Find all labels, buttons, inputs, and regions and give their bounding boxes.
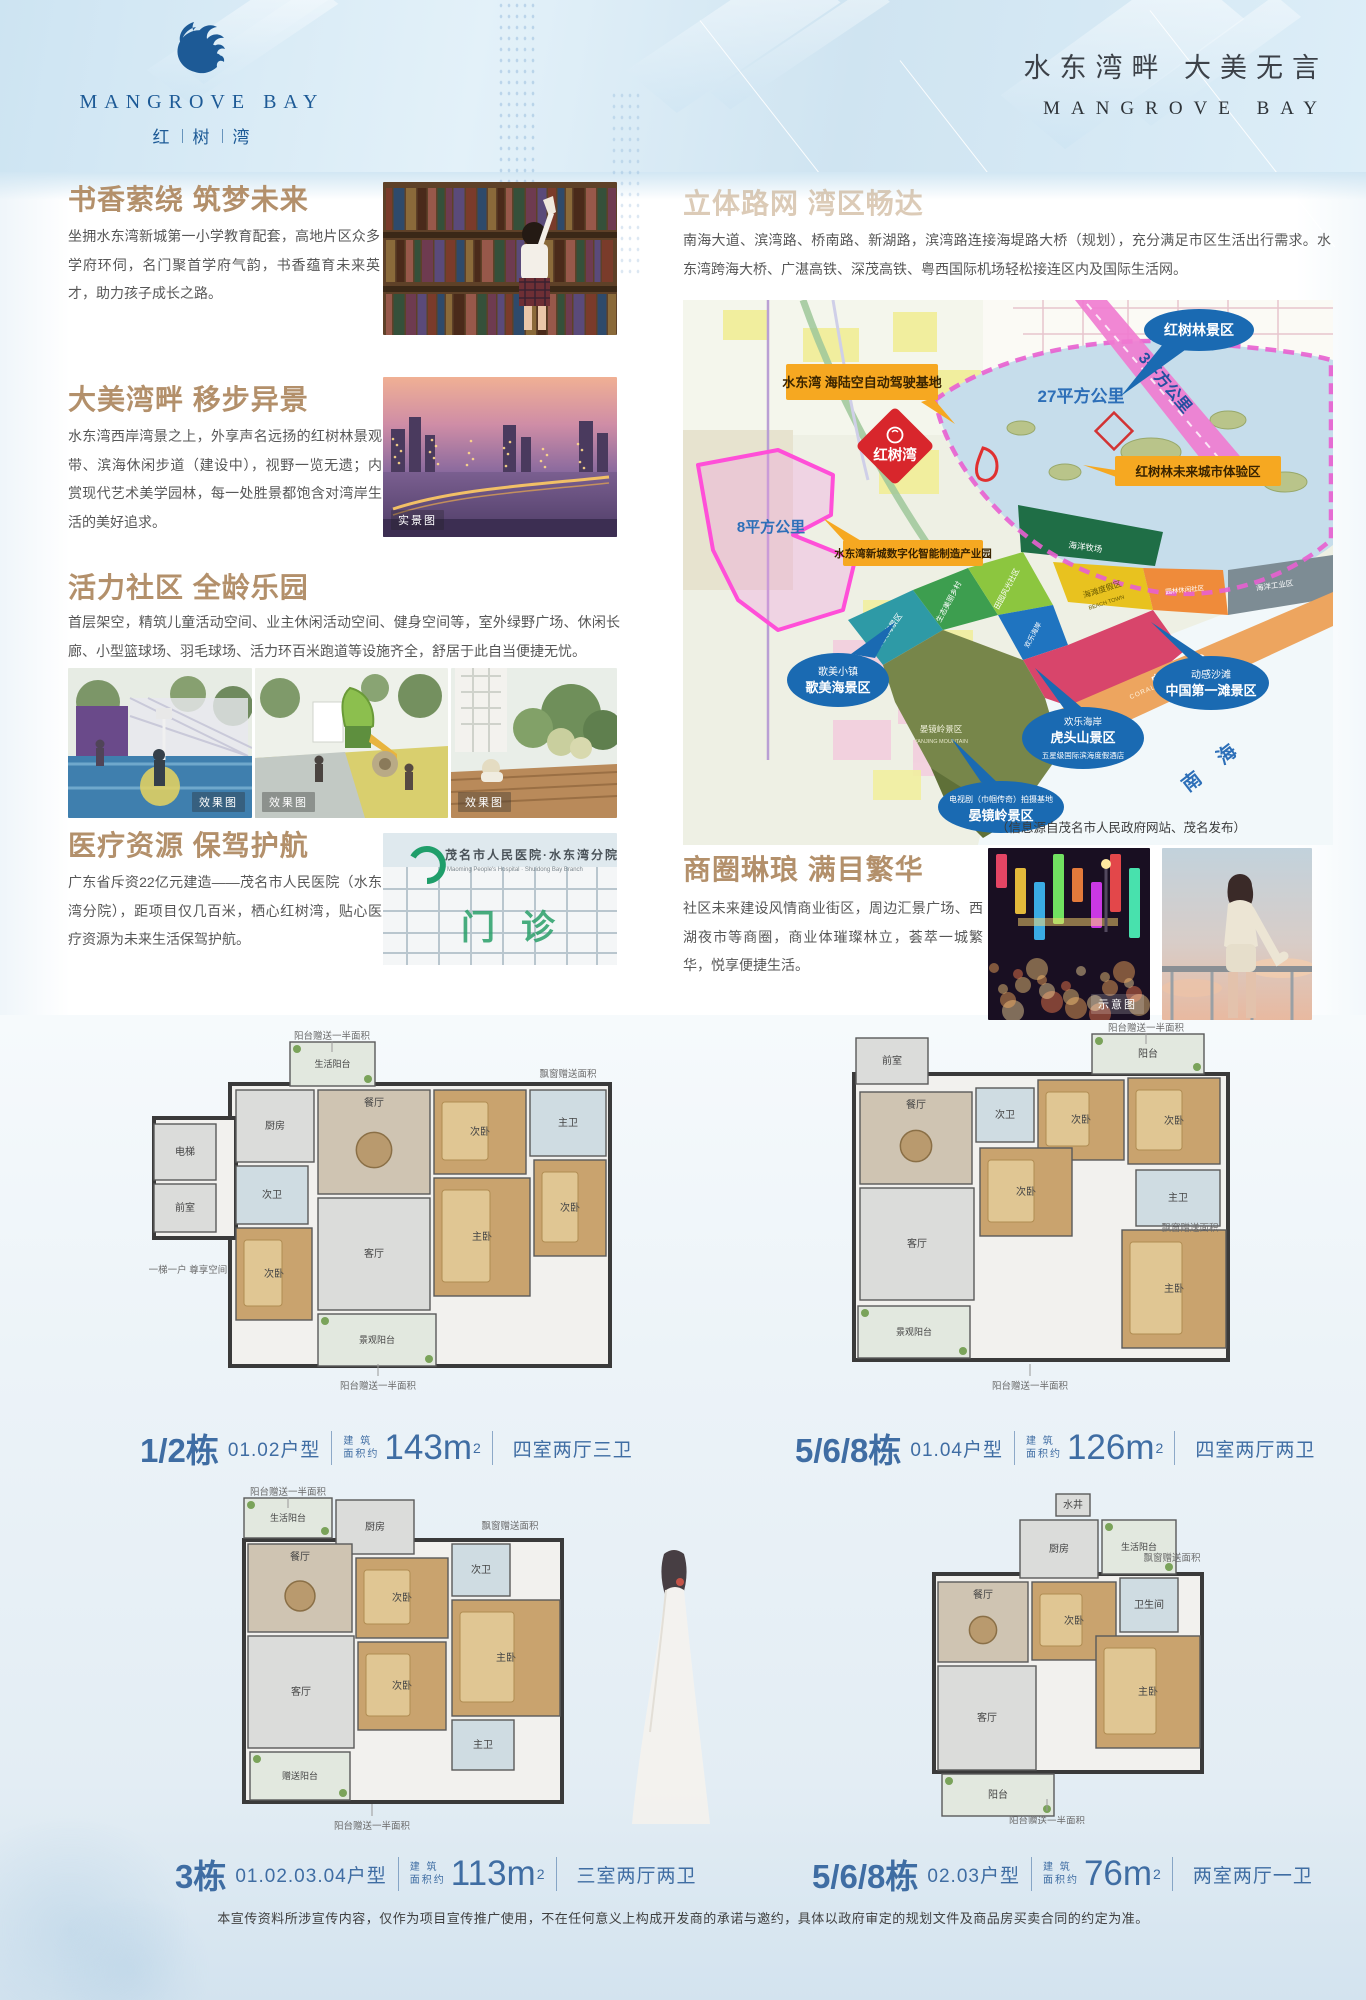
photo-balcony-lady [1162, 848, 1312, 1020]
area-sup: 2 [537, 1866, 545, 1882]
book-spine [428, 188, 436, 230]
book-spine [394, 294, 405, 335]
room-label: 客厅 [291, 1685, 311, 1698]
brand-char: 红 [153, 123, 172, 148]
photo-bay-sunset: 实景图 [383, 377, 617, 537]
floorplan-1: 生活阳台厨房餐厅次卧主卫次卫客厅主卧次卧次卧景观阳台电梯前室阳台赠送一半面积飘窗… [140, 1028, 620, 1399]
ellipse-yanjing-line1: 电视剧（巾帼传奇）拍摄基地 [949, 794, 1053, 804]
book-spine [466, 294, 476, 335]
crowd-light [1015, 977, 1031, 993]
left-edge-wash [0, 172, 70, 1015]
book-spine [457, 240, 465, 282]
book-spine [418, 294, 427, 335]
book-spine [438, 188, 445, 230]
window-light [581, 449, 584, 452]
room-label: 主卧 [472, 1230, 492, 1243]
book-spine [415, 240, 421, 282]
crowd-light [1061, 981, 1071, 991]
book-spine [566, 188, 572, 230]
neon-sign [1053, 854, 1064, 924]
balcony-lady-illustration [1162, 848, 1312, 1020]
window-light [398, 462, 401, 465]
area-caption-line: 建 筑 [343, 1435, 379, 1448]
crowd-light [1100, 972, 1110, 982]
floorplan-4: 水井厨房生活阳台餐厅次卧卫生间主卧客厅阳台飘窗赠送面积阳台赠送一半面积 [842, 1488, 1242, 1829]
book-spine [608, 188, 616, 230]
room-label: 景观阳台 [896, 1326, 932, 1337]
floorplan-label-3: 3栋 01.02.03.04户型 建 筑面积约 113m2 三室两厅两卫 [175, 1850, 697, 1898]
book-spine [558, 294, 565, 335]
book-spine [466, 240, 473, 282]
neon-sign [1129, 868, 1140, 938]
floorplan-2: 前室阳台餐厅次卫次卧次卧次卧客厅主卫主卧景观阳台阳台赠送一半面积飘窗赠送面积阳台… [792, 1022, 1237, 1399]
ellipse-gemei-line2: 歌美海景区 [805, 680, 870, 695]
header-band: MANGROVE BAY 红树湾 水东湾畔 大美无言 MANGROVE BAY [0, 0, 1366, 172]
area-caption-line: 面积约 [410, 1874, 446, 1887]
photo-night-market: 示意图 [988, 848, 1150, 1020]
room-label: 餐厅 [290, 1550, 310, 1563]
room-label: 主卧 [496, 1651, 516, 1664]
book-spine [482, 240, 493, 282]
book-spine [566, 240, 575, 282]
callout-label: 阳台赠送一半面积 [250, 1486, 327, 1498]
section-body-medical: 广东省斥资22亿元建造——茂名市人民医院（水东湾分院），距项目仅几百米，栖心红树… [68, 868, 382, 954]
room-layout: 四室两厅两卫 [1195, 1435, 1315, 1462]
building-number: 1/2栋 [140, 1424, 219, 1472]
room-layout: 三室两厅两卫 [577, 1861, 697, 1888]
divider [492, 1431, 493, 1465]
book-spine [506, 294, 512, 335]
building-number: 5/6/8栋 [812, 1850, 918, 1898]
bride-decoration [628, 1532, 716, 1832]
book-spine [488, 188, 496, 230]
book-spine [478, 294, 487, 335]
plant [1095, 1037, 1103, 1045]
room-label: 客厅 [977, 1711, 997, 1724]
callout-label: 阳台赠送一半面积 [340, 1380, 417, 1392]
room-label: 主卧 [1138, 1685, 1158, 1698]
room-label: 客厅 [907, 1237, 927, 1250]
map-label-future-city: 红树林未来城市体验区 [1135, 464, 1261, 479]
section-title-traffic: 立体路网 湾区畅达 [683, 182, 924, 222]
book-spine [555, 240, 565, 282]
plant [339, 1789, 347, 1797]
brand-char: 湾 [233, 123, 252, 148]
window-light [437, 463, 440, 466]
book-spine [598, 294, 607, 335]
book-spine [446, 240, 455, 282]
floorplan-label-2: 5/6/8栋 01.04户型 建 筑面积约 126m2 四室两厅两卫 [795, 1424, 1315, 1472]
book-spine [386, 294, 392, 335]
book-spine [514, 188, 525, 230]
photo-playground: 效果图 [255, 668, 448, 818]
crowd-light [989, 963, 999, 973]
crowd-light [1113, 961, 1135, 983]
window-light [392, 438, 395, 441]
divider [398, 1857, 399, 1891]
callout-label: 阳台赠送一半面积 [1108, 1022, 1185, 1034]
plant [945, 1777, 953, 1785]
window-light [509, 441, 512, 444]
window-light [507, 453, 510, 456]
book-spine [438, 294, 445, 335]
book-spine [558, 188, 565, 230]
callout-label: 飘窗赠送面积 [1161, 1222, 1219, 1234]
book-spine [574, 294, 585, 335]
neon-sign [1034, 882, 1045, 940]
window-light [433, 457, 436, 460]
area-value: 126 [1067, 1428, 1125, 1468]
room-label: 餐厅 [364, 1096, 384, 1109]
room-label: 次卧 [392, 1679, 412, 1692]
room-label: 次卫 [262, 1188, 282, 1201]
book-spine [574, 188, 585, 230]
dining-table [285, 1581, 315, 1611]
neon-glow [1018, 918, 1118, 926]
neon-sign [1015, 868, 1026, 914]
dining-table [356, 1132, 391, 1167]
book-spine [506, 188, 512, 230]
section-title-medical: 医疗资源 保驾护航 [68, 824, 309, 864]
area-caption-line: 面积约 [1026, 1448, 1062, 1461]
neon-sign [1110, 854, 1121, 912]
room-label: 餐厅 [906, 1098, 926, 1111]
zone-yanjing: 晏镜岭景区 [920, 724, 963, 734]
callout-label: 阳台赠送一半面积 [334, 1820, 411, 1832]
window-light [542, 448, 545, 451]
room-label: 餐厅 [973, 1588, 993, 1601]
floorplan-drawing: 生活阳台厨房餐厅次卧次卫主卧客厅次卧主卫赠送阳台阳台赠送一半面积飘窗赠送面积阳台… [172, 1486, 577, 1834]
window-light [394, 456, 397, 459]
book-spine [454, 188, 465, 230]
book-spine [566, 294, 572, 335]
map-label-auto-driving: 水东湾 海陆空自动驾驶基地 [782, 375, 942, 390]
room-label: 次卧 [1016, 1185, 1036, 1198]
room-label: 次卧 [560, 1201, 580, 1214]
book-spine [466, 188, 476, 230]
divider [1174, 1431, 1175, 1465]
callout-label: 飘窗赠送面积 [539, 1068, 597, 1080]
brand-char: 树 [193, 123, 212, 148]
area-sup: 2 [473, 1440, 481, 1456]
window-light [472, 458, 475, 461]
room-label: 生活阳台 [314, 1058, 350, 1069]
neon-sign [1072, 868, 1083, 902]
photo-tag: 效果图 [458, 792, 511, 812]
ellipse-beach-line1: 动感沙滩 [1191, 668, 1231, 681]
window-light [429, 451, 432, 454]
window-light [503, 447, 506, 450]
divider [1172, 1857, 1173, 1891]
window-light [396, 444, 399, 447]
book-spine [397, 240, 405, 282]
ellipse-gemei-line1: 歌美小镇 [818, 665, 858, 678]
mangrove-bay-logo-icon [165, 18, 239, 80]
floorplan-drawing: 水井厨房生活阳台餐厅次卧卫生间主卧客厅阳台飘窗赠送面积阳台赠送一半面积 [842, 1488, 1242, 1824]
book-spine [577, 240, 585, 282]
book-spine [435, 240, 445, 282]
callout-label: 阳台赠送一半面积 [992, 1380, 1069, 1392]
crowd-light [1063, 989, 1079, 1005]
area-caption: 建 筑面积约 [1043, 1861, 1079, 1887]
room-label: 次卧 [264, 1267, 284, 1280]
photo-tag: 效果图 [192, 792, 245, 812]
area-caption: 建 筑面积约 [343, 1435, 379, 1461]
floorplan-3: 生活阳台厨房餐厅次卧次卫主卧客厅次卧主卫赠送阳台阳台赠送一半面积飘窗赠送面积阳台… [172, 1486, 577, 1839]
unit-number: 01.04户型 [910, 1435, 1003, 1462]
plant [959, 1347, 967, 1355]
ellipse-beach-line2: 中国第一滩景区 [1165, 683, 1256, 698]
area-sup: 2 [1153, 1866, 1161, 1882]
area-caption-line: 建 筑 [1043, 1861, 1079, 1874]
section-body-community: 首层架空，精筑儿童活动空间、业主休闲活动空间、健身空间等，室外绿野广场、休闲长廊… [68, 608, 620, 665]
area-unit: m [1123, 1854, 1152, 1894]
crowd-light [1026, 958, 1048, 980]
plant [1105, 1523, 1113, 1531]
crowd-light [998, 984, 1008, 994]
crowd-light [1013, 969, 1023, 979]
poster-page: MANGROVE BAY 红树湾 水东湾畔 大美无言 MANGROVE BAY … [0, 0, 1366, 2000]
area-caption: 建 筑面积约 [410, 1861, 446, 1887]
window-light [577, 443, 580, 446]
map-area-8km: 8平方公里 [737, 518, 805, 536]
crowd-light [1076, 966, 1086, 976]
photo-tag: 实景图 [391, 510, 444, 530]
area-unit: m [507, 1854, 536, 1894]
section-title-business: 商圈琳琅 满目繁华 [683, 848, 924, 888]
book-spine [454, 294, 465, 335]
plant [1193, 1063, 1201, 1071]
slogan-en: MANGROVE BAY [1023, 98, 1328, 120]
callout-label: 一梯一户 尊享空间 [149, 1264, 228, 1276]
book-spine [498, 294, 505, 335]
map-credit: （信息源自茂名市人民政府网站、茂名发布） [996, 820, 1246, 835]
hospital-sign-big: 门诊 [461, 909, 581, 947]
building-number: 5/6/8栋 [795, 1424, 901, 1472]
neon-sign [996, 854, 1007, 888]
photo-garden: 效果图 [451, 668, 617, 818]
plant [321, 1317, 329, 1325]
divider [556, 1857, 557, 1891]
book-spine [478, 188, 487, 230]
window-light [400, 450, 403, 453]
hospital-sign-cn: 茂名市人民医院·水东湾分院 [445, 847, 617, 862]
section-body-business: 社区未来建设风情商业街区，周边汇景广场、西湖夜市等商圈，商业体璀璨林立，荟萃一城… [683, 894, 983, 980]
room-label: 主卧 [1164, 1282, 1184, 1295]
dining-table [969, 1616, 996, 1643]
floorplan-label-4: 5/6/8栋 02.03户型 建 筑面积约 76m2 两室两厅一卫 [812, 1850, 1313, 1898]
book-spine [418, 188, 427, 230]
book-spine [406, 240, 413, 282]
plant [293, 1045, 301, 1053]
room-layout: 两室两厅一卫 [1193, 1861, 1313, 1888]
callout-label: 飘窗赠送面积 [481, 1520, 539, 1532]
book-spine [406, 188, 416, 230]
room-label: 次卫 [471, 1563, 491, 1576]
plant [364, 1075, 372, 1083]
book-spine [598, 188, 607, 230]
room-label: 主卫 [473, 1739, 493, 1751]
room-layout: 四室两厅三卫 [513, 1435, 633, 1462]
map-area-27km: 27平方公里 [1038, 386, 1125, 406]
callout-label: 阳台赠送一半面积 [1009, 1815, 1086, 1824]
area-caption: 建 筑面积约 [1026, 1435, 1062, 1461]
plant [861, 1309, 869, 1317]
room-label: 次卧 [1071, 1113, 1091, 1126]
plant [1165, 1563, 1173, 1571]
book-spine [394, 188, 405, 230]
ellipse-hutou-line2: 虎头山景区 [1050, 730, 1115, 745]
plant [321, 1527, 329, 1535]
area-value: 113 [451, 1854, 507, 1894]
footer-disclaimer: 本宣传资料所涉宣传内容，仅作为项目宣传推广使用，不在任何意义上构成开发商的承诺与… [0, 1908, 1366, 1927]
book-spine [586, 294, 596, 335]
book-spine [506, 240, 515, 282]
window-light [583, 467, 586, 470]
plant [425, 1355, 433, 1363]
book-spine [475, 240, 481, 282]
room-label: 次卧 [1064, 1614, 1084, 1627]
hospital-illustration: 茂名市人民医院·水东湾分院 Maoming People's Hospital … [383, 833, 617, 965]
divider [1031, 1857, 1032, 1891]
room-label: 生活阳台 [1121, 1541, 1157, 1552]
divider [331, 1431, 332, 1465]
book-spine [495, 240, 505, 282]
room-label: 电梯 [175, 1145, 195, 1158]
planning-map-svg: 3平方公里 歌美海景区 生态美丽乡村 田园风光社区 欢乐海岸 海洋牧场 海洋工业… [683, 300, 1333, 845]
room-label: 次卧 [392, 1591, 412, 1604]
book-spine [498, 188, 505, 230]
book-spine [406, 294, 416, 335]
ellipse-hutou-line1: 欢乐海岸 [1064, 716, 1103, 728]
project-marker-label: 红树湾 [873, 446, 917, 464]
room-label: 主卫 [1168, 1192, 1188, 1204]
crowd-light [1000, 992, 1016, 1008]
book-spine [386, 188, 392, 230]
area-caption-line: 面积约 [1043, 1874, 1079, 1887]
area-value: 76 [1084, 1854, 1123, 1894]
book-spine [386, 240, 395, 282]
room-label: 水井 [1063, 1498, 1083, 1511]
room-label: 客厅 [364, 1247, 384, 1260]
area-unit: m [1125, 1428, 1154, 1468]
room-label: 赠送阳台 [282, 1770, 318, 1781]
dining-table [900, 1130, 931, 1161]
window-light [544, 466, 547, 469]
window-light [546, 454, 549, 457]
room-label: 厨房 [265, 1119, 285, 1132]
window-light [431, 439, 434, 442]
floorplan-drawing: 前室阳台餐厅次卫次卧次卧次卧客厅主卫主卧景观阳台阳台赠送一半面积飘窗赠送面积阳台… [792, 1022, 1237, 1394]
photo-hospital: 茂名市人民医院·水东湾分院 Maoming People's Hospital … [383, 833, 617, 965]
area-caption-line: 面积约 [343, 1448, 379, 1461]
window-light [579, 461, 582, 464]
room-label: 次卧 [470, 1125, 490, 1138]
room-label: 生活阳台 [270, 1512, 306, 1523]
divider [1014, 1431, 1015, 1465]
map-label-mangrove-scenic: 红树林景区 [1164, 322, 1234, 338]
photo-tag: 示意图 [1091, 994, 1144, 1014]
section-title-community: 活力社区 全龄乐园 [68, 566, 309, 606]
library-illustration [383, 182, 617, 335]
callout-label: 阳台赠送一半面积 [294, 1030, 371, 1042]
plant [253, 1755, 261, 1763]
slogan-cn: 水东湾畔 大美无言 [1023, 46, 1328, 85]
window-light [435, 445, 438, 448]
room-label: 次卫 [995, 1108, 1015, 1121]
area-sup: 2 [1156, 1440, 1164, 1456]
book-spine [595, 240, 601, 282]
window-light [505, 465, 508, 468]
section-title-scenery: 大美湾畔 移步异景 [68, 378, 309, 418]
photo-basketball-court: 效果图 [68, 668, 252, 818]
book-spine [586, 240, 593, 282]
unit-number: 01.02户型 [228, 1435, 321, 1462]
section-body-education: 坐拥水东湾新城第一小学教育配套，高地片区众多学府环伺，名门聚首学府气韵，书香蕴育… [68, 222, 380, 308]
ellipse-hutou-line3: 五星级国际滨海度假酒店 [1042, 750, 1125, 760]
photo-tag: 效果图 [262, 792, 315, 812]
area-caption-line: 建 筑 [410, 1861, 446, 1874]
window-light [540, 460, 543, 463]
map-label-industry-park: 水东湾新城数字化智能制造产业园 [833, 547, 992, 560]
section-body-traffic: 南海大道、滨湾路、桥南路、新湖路，滨湾路连接海堤路大桥（规划），充分满足市区生活… [683, 226, 1331, 283]
room-label: 厨房 [365, 1520, 385, 1533]
room-label: 次卧 [1164, 1114, 1184, 1127]
room-label: 厨房 [1049, 1542, 1069, 1555]
photo-library [383, 182, 617, 335]
window-light [466, 464, 469, 467]
book-spine [602, 240, 613, 282]
floorplan-label-1: 1/2栋 01.02户型 建 筑面积约 143m2 四室两厅三卫 [140, 1424, 633, 1472]
floorplan-drawing: 生活阳台厨房餐厅次卧主卫次卫客厅主卧次卧次卧景观阳台电梯前室阳台赠送一半面积飘窗… [140, 1028, 620, 1394]
window-light [470, 440, 473, 443]
divider [222, 129, 223, 143]
room-label: 前室 [882, 1054, 902, 1067]
book-spine [488, 294, 496, 335]
planning-map: 3平方公里 歌美海景区 生态美丽乡村 田园风光社区 欢乐海岸 海洋牧场 海洋工业… [683, 300, 1333, 845]
unit-number: 02.03户型 [927, 1861, 1020, 1888]
book-spine [422, 240, 433, 282]
book-spine [446, 188, 452, 230]
header-slogan: 水东湾畔 大美无言 MANGROVE BAY [1023, 46, 1328, 120]
brand-name-cn: 红树湾 [52, 123, 352, 148]
book-spine [586, 188, 596, 230]
window-light [468, 452, 471, 455]
brand-name-en: MANGROVE BAY [52, 91, 352, 114]
area-value: 143 [384, 1428, 442, 1468]
brand-logo: MANGROVE BAY 红树湾 [52, 18, 352, 148]
hospital-sign-en: Maoming People's Hospital · Shuidong Bay… [447, 867, 583, 873]
zone-yanjing-en: YANJING MOUNTAIN [914, 739, 968, 745]
book-spine [446, 294, 452, 335]
divider [182, 129, 183, 143]
area-caption-line: 建 筑 [1026, 1435, 1062, 1448]
section-body-scenery: 水东湾西岸湾景之上，外享声名远扬的红树林景观带、滨海休闲步道（建设中），视野一览… [68, 422, 382, 537]
room-label: 主卫 [558, 1117, 578, 1129]
bookshelf-books [386, 188, 616, 335]
room-label: 阳台 [988, 1788, 1008, 1801]
callout-label: 飘窗赠送面积 [1143, 1552, 1201, 1564]
book-spine [608, 294, 616, 335]
plant [247, 1501, 255, 1509]
room-label: 前室 [175, 1201, 195, 1214]
unit-number: 01.02.03.04户型 [235, 1861, 386, 1888]
room-label: 景观阳台 [359, 1334, 395, 1345]
area-unit: m [443, 1428, 472, 1468]
room-label: 卫生间 [1134, 1598, 1164, 1611]
book-spine [428, 294, 436, 335]
room-label: 阳台 [1138, 1047, 1158, 1060]
